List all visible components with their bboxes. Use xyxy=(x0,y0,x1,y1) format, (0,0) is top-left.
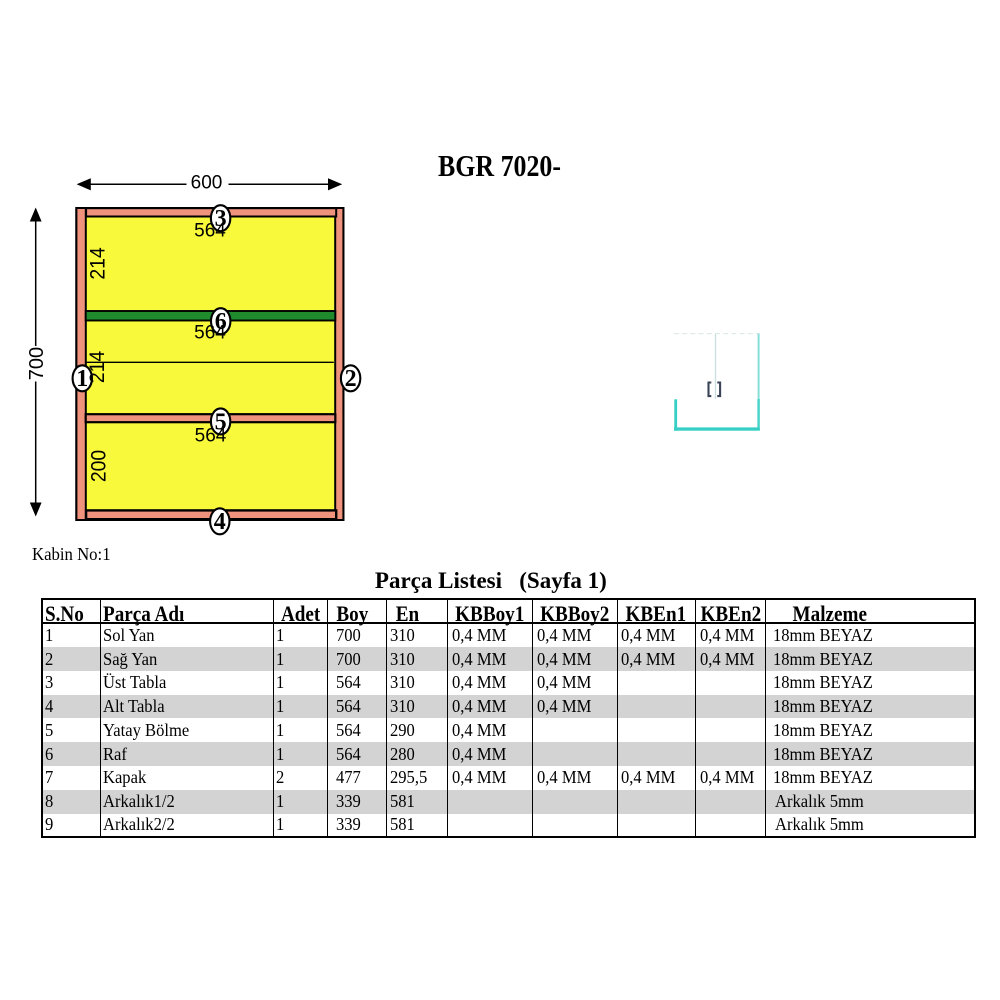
svg-text:600: 600 xyxy=(191,172,223,193)
svg-text:200: 200 xyxy=(87,450,111,482)
svg-text:564: 564 xyxy=(195,425,227,446)
svg-text:564: 564 xyxy=(194,220,226,241)
svg-text:2: 2 xyxy=(345,366,357,392)
svg-text:4: 4 xyxy=(214,509,226,535)
svg-text:214: 214 xyxy=(86,247,110,279)
svg-text:700: 700 xyxy=(26,347,48,380)
svg-text:564: 564 xyxy=(194,322,226,343)
svg-text:214: 214 xyxy=(85,351,109,383)
